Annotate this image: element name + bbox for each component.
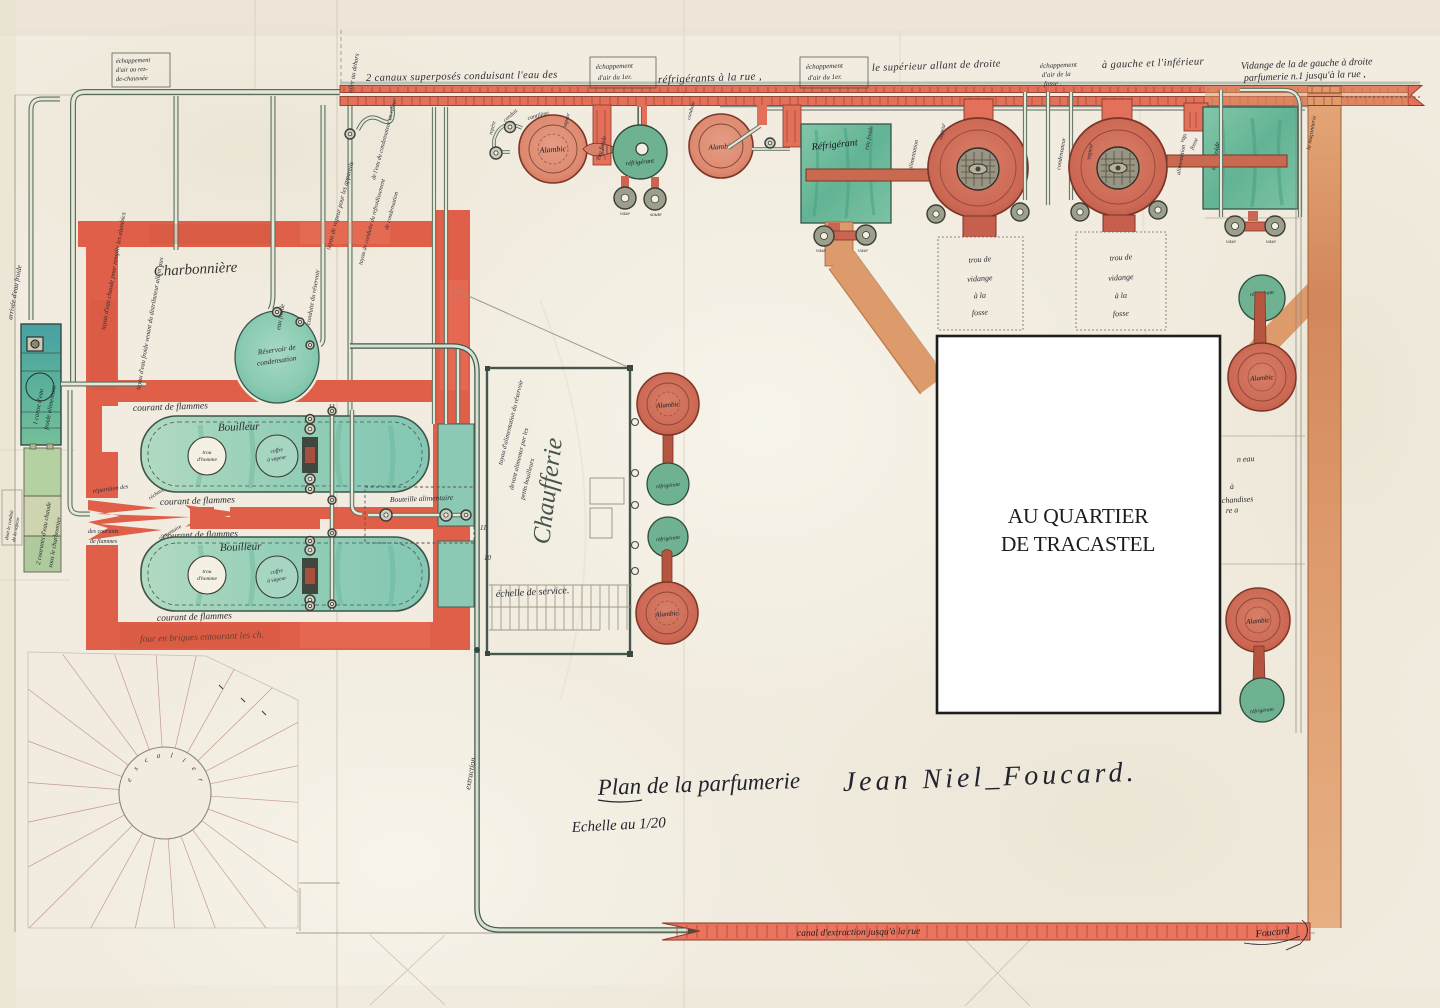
svg-text:11: 11 (480, 524, 486, 532)
svg-text:trou de: trou de (1109, 252, 1133, 263)
svg-text:n eau: n eau (1237, 454, 1255, 464)
svg-text:trou de: trou de (968, 254, 992, 265)
svg-text:à la: à la (973, 291, 986, 301)
svg-text:fosse: fosse (972, 307, 989, 317)
svg-text:vase: vase (620, 211, 630, 217)
svg-text:échappement: échappement (116, 57, 151, 65)
svg-text:à la: à la (1114, 291, 1127, 301)
svg-text:échappement: échappement (596, 62, 634, 71)
svg-text:d'air de la: d'air de la (1042, 70, 1071, 79)
svg-text:10: 10 (484, 554, 492, 562)
svg-text:re a: re a (1226, 505, 1239, 515)
svg-text:fosse: fosse (1113, 308, 1130, 318)
svg-text:d'homme: d'homme (197, 576, 217, 582)
svg-text:vidange: vidange (1108, 272, 1134, 283)
svg-text:AU QUARTIER: AU QUARTIER (1008, 504, 1149, 528)
svg-text:trou: trou (203, 450, 212, 456)
svg-text:de-chaussée: de-chaussée (116, 75, 148, 83)
svg-text:vase: vase (816, 248, 826, 254)
svg-text:DE TRACASTEL: DE TRACASTEL (1001, 532, 1155, 556)
svg-text:vidange: vidange (967, 273, 993, 284)
svg-text:vase: vase (858, 248, 868, 254)
svg-text:d'air du 1er.: d'air du 1er. (808, 73, 842, 82)
svg-text:chandises: chandises (1222, 494, 1254, 505)
svg-text:des courants: des courants (88, 529, 119, 535)
svg-text:soute: soute (650, 212, 662, 218)
svg-text:de flammes: de flammes (90, 538, 118, 545)
svg-text:à: à (1230, 482, 1234, 491)
svg-text:vase: vase (1266, 239, 1276, 245)
svg-text:vase: vase (1226, 239, 1236, 245)
svg-text:trou: trou (203, 569, 212, 575)
svg-text:fosse .: fosse . (1044, 79, 1062, 88)
svg-text:Bouilleur: Bouilleur (218, 421, 261, 434)
svg-text:d'air au rez-: d'air au rez- (116, 66, 148, 74)
svg-text:d'homme: d'homme (197, 457, 217, 463)
svg-text:Bouilleur: Bouilleur (220, 541, 263, 554)
svg-text:échappement: échappement (806, 62, 844, 71)
svg-text:échappement: échappement (1040, 61, 1078, 70)
svg-text:d'air du 1er.: d'air du 1er. (598, 73, 632, 82)
